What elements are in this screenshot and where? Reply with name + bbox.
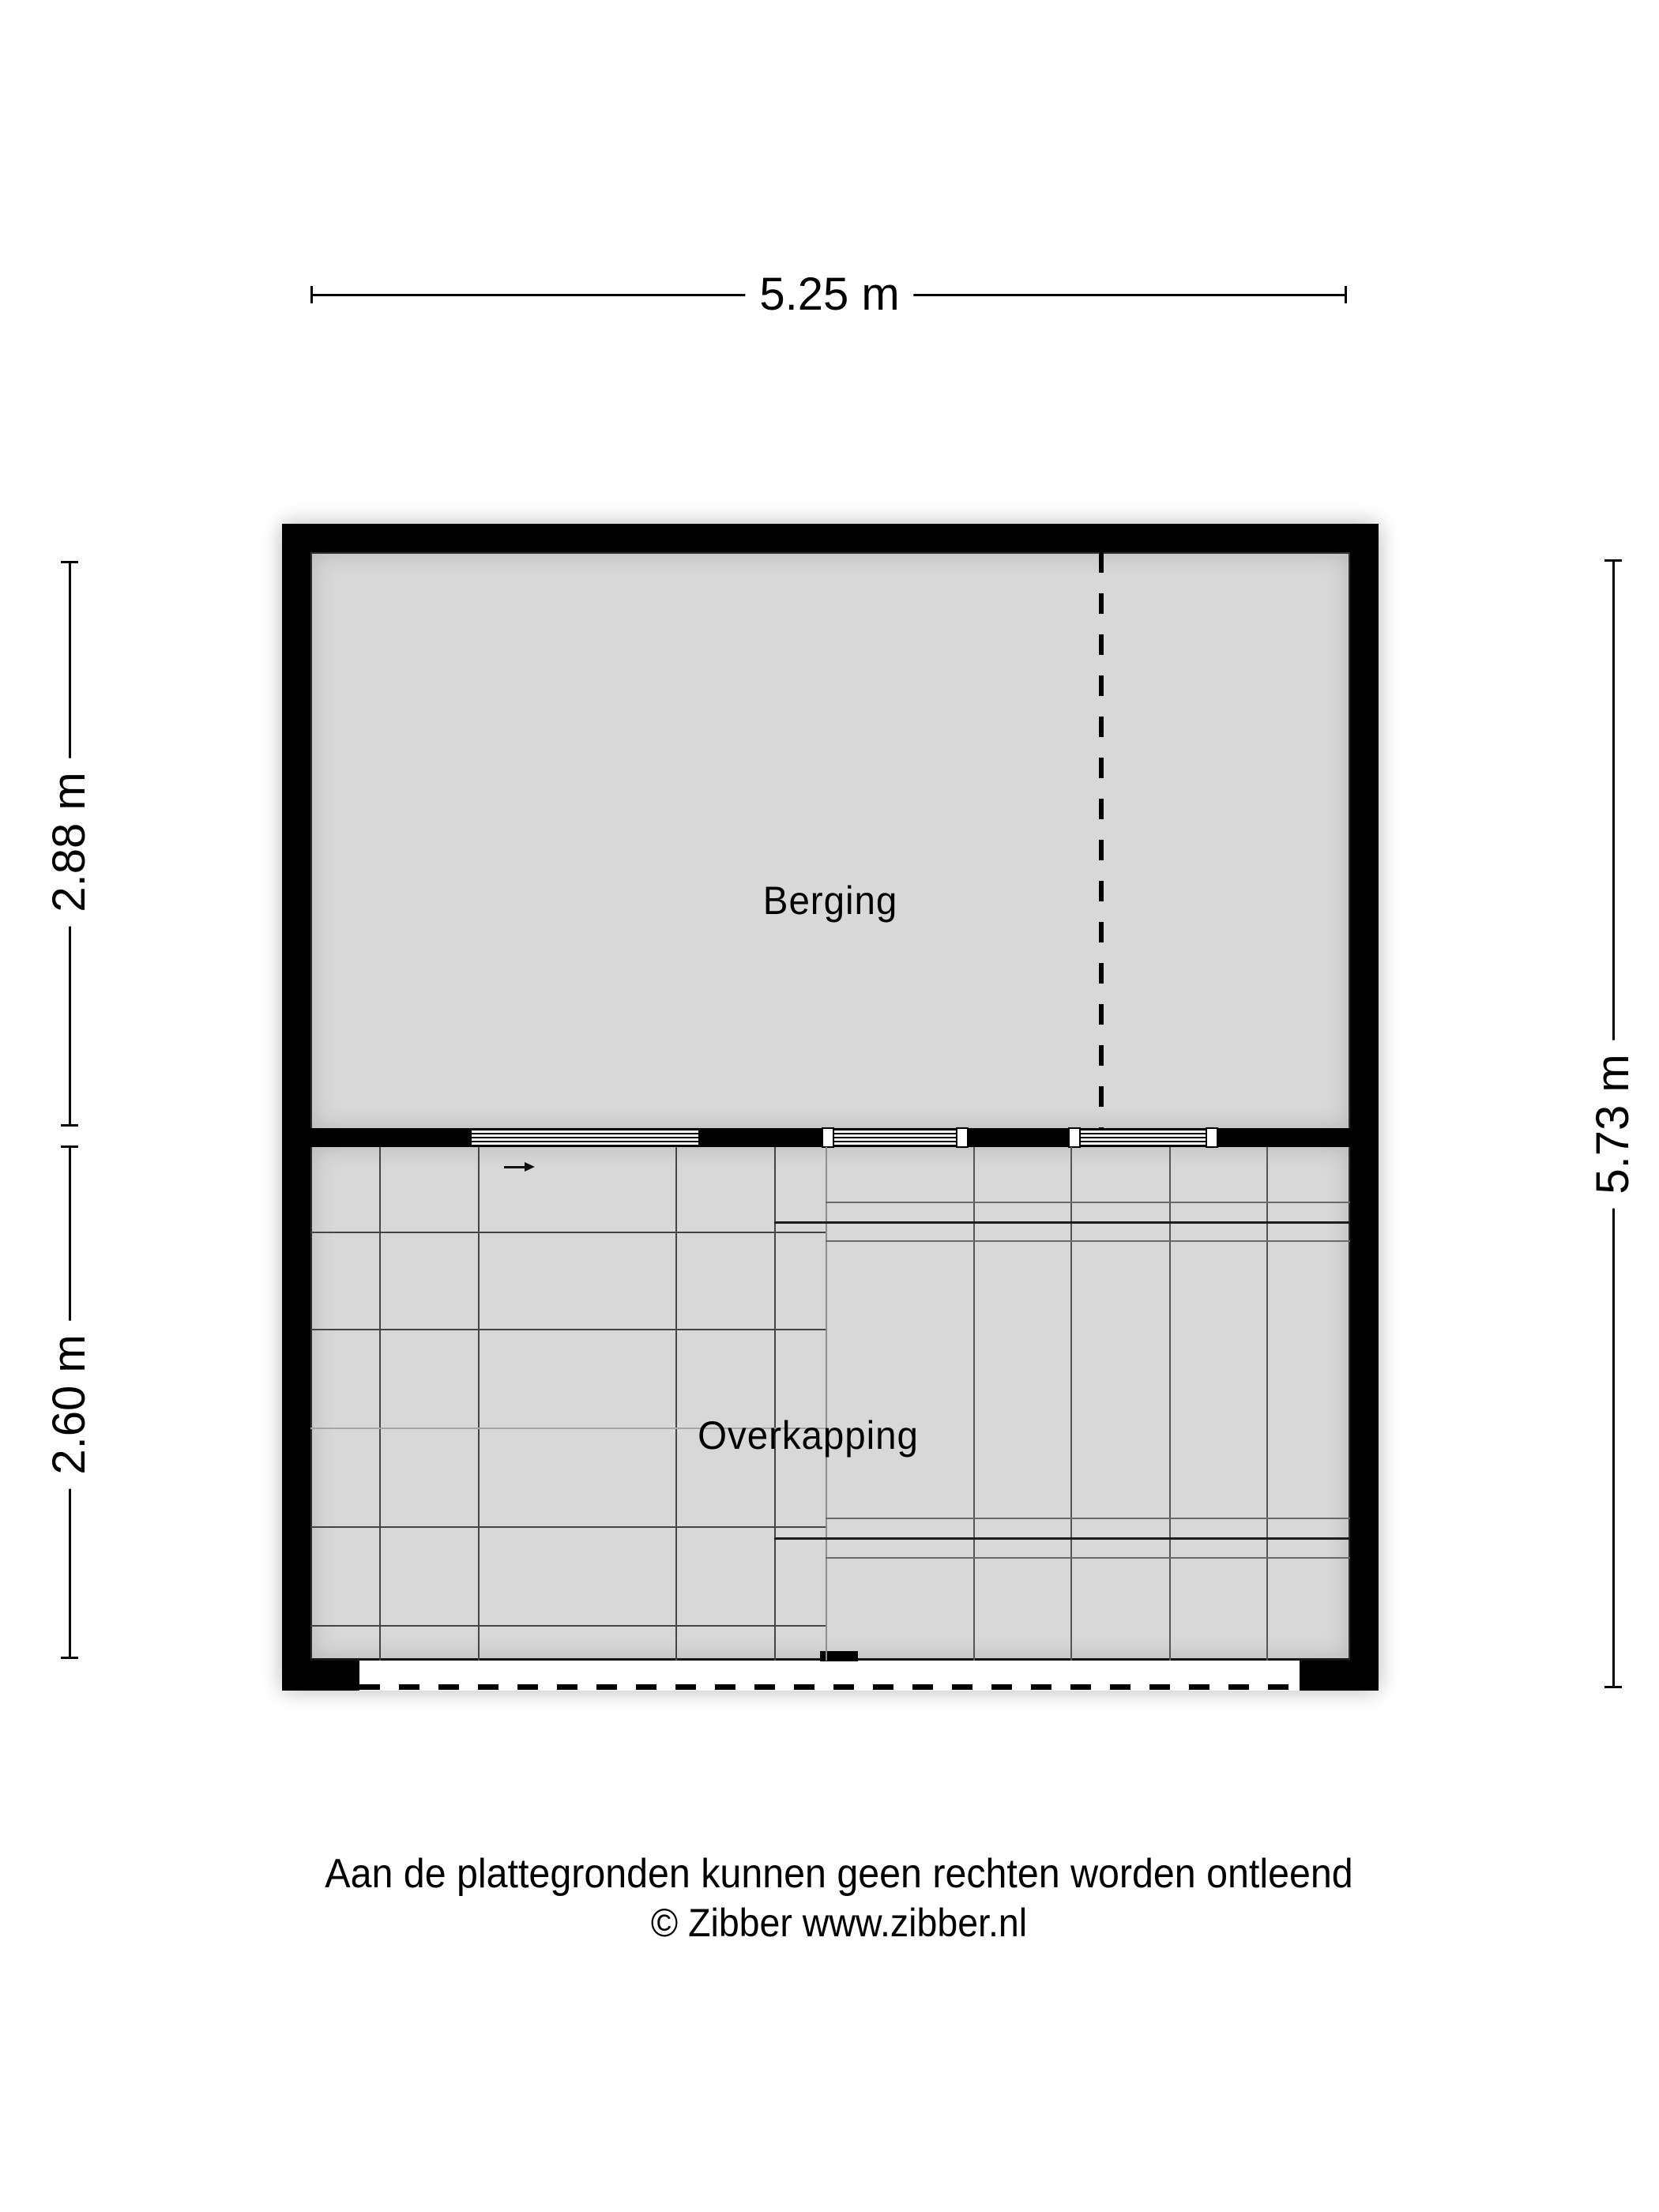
dimension-tick bbox=[1604, 1686, 1622, 1688]
room-berging-floor bbox=[310, 552, 1350, 1128]
dimension-tick bbox=[310, 286, 313, 303]
window-icon bbox=[472, 1129, 698, 1146]
tile-grid-line bbox=[826, 1518, 1350, 1519]
dimension-tick bbox=[61, 1657, 78, 1659]
floorplan-page: { "dimensions": { "top": "5.25 m", "left… bbox=[0, 0, 1659, 2212]
window-jamb-icon bbox=[956, 1127, 969, 1148]
tile-grid-line bbox=[826, 1557, 1350, 1559]
wall-top bbox=[282, 524, 1379, 552]
tile-grid-line bbox=[675, 1147, 677, 1661]
tile-grid-line bbox=[826, 1240, 1350, 1242]
dimension-label-left-lower: 2.60 m bbox=[42, 1320, 97, 1488]
tile-grid-line bbox=[826, 1147, 827, 1661]
tile-grid-line bbox=[774, 1147, 776, 1661]
tile-grid-line bbox=[478, 1147, 480, 1661]
window-icon bbox=[1081, 1129, 1206, 1146]
dimension-tick bbox=[61, 1145, 78, 1148]
window-icon bbox=[834, 1129, 956, 1146]
tile-grid-line bbox=[379, 1147, 381, 1661]
tile-grid-line bbox=[1070, 1147, 1072, 1661]
wall-left bbox=[282, 524, 310, 1691]
tile-grid-line bbox=[310, 1526, 826, 1528]
window-jamb-icon bbox=[1206, 1127, 1218, 1148]
tile-grid-line bbox=[826, 1202, 1350, 1203]
room-label-berging: Berging bbox=[763, 878, 897, 924]
tile-grid-line bbox=[310, 1232, 826, 1233]
wall-corner-bottom-left bbox=[282, 1661, 359, 1691]
dimension-label-left-upper: 2.88 m bbox=[42, 758, 97, 926]
tile-grid-line bbox=[310, 1625, 826, 1627]
entry-arrow-icon bbox=[525, 1162, 535, 1172]
dashed-divider-line bbox=[1099, 552, 1104, 1128]
footer-disclaimer: Aan de plattegronden kunnen geen rechten… bbox=[325, 1850, 1352, 1898]
window-jamb-icon bbox=[822, 1127, 834, 1148]
tile-grid-line bbox=[973, 1147, 975, 1661]
footer-copyright: © Zibber www.zibber.nl bbox=[651, 1900, 1027, 1946]
tile-grid-line bbox=[1169, 1147, 1171, 1661]
dimension-tick bbox=[61, 561, 78, 563]
tile-grid-line bbox=[1266, 1147, 1268, 1661]
tile-grid-line bbox=[774, 1537, 1350, 1540]
wall-right bbox=[1350, 524, 1379, 1691]
dimension-tick bbox=[1345, 286, 1347, 303]
open-side-dashed-line bbox=[359, 1684, 1300, 1690]
wall-corner-bottom-right bbox=[1300, 1661, 1379, 1691]
tile-grid-line bbox=[774, 1221, 1350, 1224]
room-label-overkapping: Overkapping bbox=[698, 1413, 919, 1458]
tile-grid-line bbox=[310, 1329, 826, 1330]
dimension-label-right: 5.73 m bbox=[1586, 1040, 1641, 1208]
dimension-tick bbox=[1604, 559, 1622, 562]
entry-arrow-icon bbox=[504, 1166, 526, 1168]
room-overkapping-floor bbox=[310, 1147, 1350, 1661]
dimension-label-top: 5.25 m bbox=[745, 267, 913, 322]
window-jamb-icon bbox=[1068, 1127, 1081, 1148]
dimension-tick bbox=[61, 1124, 78, 1127]
